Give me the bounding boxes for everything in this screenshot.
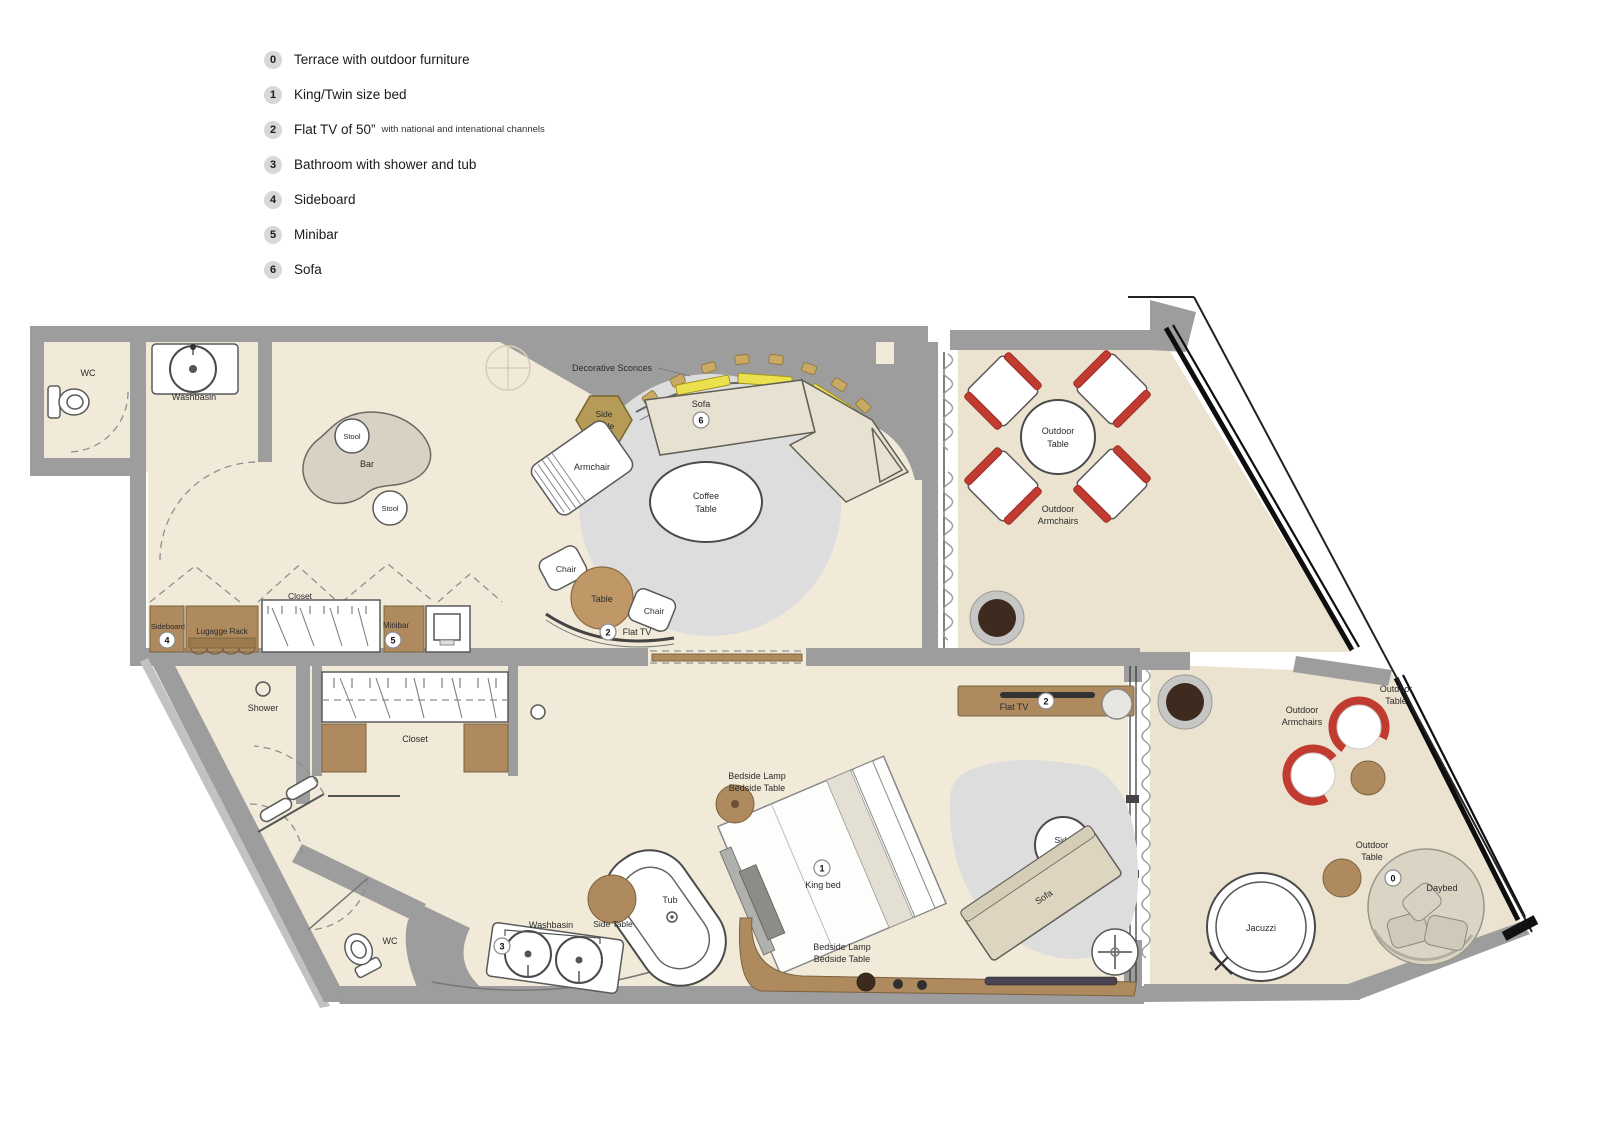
sliding-door [648,646,806,668]
svg-text:2: 2 [1043,697,1048,707]
minibar-badge: 5 [385,632,401,648]
closet-bottom-label: Closet [402,734,428,744]
planter-top [970,591,1024,645]
bedside-top-label-1: Bedside Lamp [728,771,786,781]
stool-top-label: Stool [343,432,360,441]
svg-text:1: 1 [819,864,824,874]
outdoor-table-top-label-1: Outdoor [1042,426,1075,436]
table-round-label: Table [591,594,613,604]
svg-text:6: 6 [698,416,703,426]
outdoor-table-bottom [1323,859,1361,897]
outdoor-armchairs-right-label-2: Armchairs [1282,717,1323,727]
ceiling-fan-icon [486,346,530,390]
outdoor-table-top [1021,400,1095,474]
chair-right-label: Chair [644,606,664,616]
daybed-label: Daybed [1426,883,1457,893]
outdoor-table-right [1351,761,1385,795]
decorative-sconces-label: Decorative Sconces [572,363,653,373]
minibar-label: Minibar [383,621,410,630]
side-table-bath [588,875,636,923]
coffee-table-label-2: Table [695,504,717,514]
flat-tv-living-badge: 2 [600,624,616,640]
bar-label: Bar [360,459,374,469]
side-table-living-label-1: Side [595,409,612,419]
luggage-rack: Lugagge Rack [186,606,258,654]
svg-text:5: 5 [390,636,395,646]
stool-bottom-label: Stool [381,504,398,513]
door-knob-icon [531,705,545,719]
washbasin-bottom-badge: 3 [494,938,510,954]
jacuzzi: Jacuzzi [1207,873,1315,981]
floorplan-page: 0 Terrace with outdoor furniture 1 King/… [0,0,1600,1132]
sideboard-label: Sideboard [151,622,185,631]
closet-top-label: Closet [288,591,313,601]
jacuzzi-label: Jacuzzi [1246,923,1276,933]
tub-label: Tub [662,895,677,905]
floorplan-drawing: WC Washbasin Sideboard 4 [0,0,1600,1132]
king-bed-badge: 1 [814,860,830,876]
side-table-bath-label: Side Table [593,919,633,929]
bedside-bottom-label-2: Bedside Table [814,954,870,964]
minibar: Minibar 5 [383,606,470,652]
washbasin-bottom-label: Washbasin [529,920,573,930]
outdoor-table-bottom-label-1: Outdoor [1356,840,1389,850]
outdoor-armchairs-top-label-1: Outdoor [1042,504,1075,514]
svg-text:3: 3 [499,942,504,952]
svg-text:0: 0 [1390,874,1395,884]
toilet-icon [48,386,89,418]
shower-label: Shower [248,703,279,713]
outdoor-table-bottom-label-2: Table [1361,852,1383,862]
flat-tv-living-label: Flat TV [623,627,652,637]
sideboard-badge: 4 [159,632,175,648]
bedside-top-label-2: Bedside Table [729,783,785,793]
coffee-table [650,462,762,542]
flat-tv-bedroom: Flat TV 2 [958,686,1134,719]
flat-tv-bedroom-label: Flat TV [1000,702,1029,712]
svg-text:2: 2 [605,628,610,638]
outdoor-table-top-label-2: Table [1047,439,1069,449]
outdoor-armchairs-right-label-1: Outdoor [1286,705,1319,715]
luggage-rack-label: Lugagge Rack [196,627,249,636]
bedside-bottom-label-1: Bedside Lamp [813,942,871,952]
sofa-living-label: Sofa [692,399,711,409]
daybed-badge: 0 [1385,870,1401,886]
outdoor-table-right-label-1: Outdoor [1380,684,1413,694]
chair-left-label: Chair [556,564,576,574]
wc-top-label: WC [81,368,96,378]
planter-bottom [1158,675,1212,729]
washbasin-top-label: Washbasin [172,392,216,402]
closet-top: Closet [262,591,380,652]
coffee-table-label-1: Coffee [693,491,719,501]
outdoor-armchairs-top-label-2: Armchairs [1038,516,1079,526]
svg-text:4: 4 [164,636,169,646]
wc-bottom-label: WC [383,936,398,946]
flat-tv-bedroom-badge: 2 [1038,693,1054,709]
outdoor-table-right-label-2: Table [1385,696,1407,706]
sofa-badge: 6 [693,412,709,428]
king-bed-label: King bed [805,880,841,890]
armchair-label: Armchair [574,462,610,472]
daybed: 0 Daybed [1368,849,1484,965]
round-cross-table [1092,929,1138,975]
